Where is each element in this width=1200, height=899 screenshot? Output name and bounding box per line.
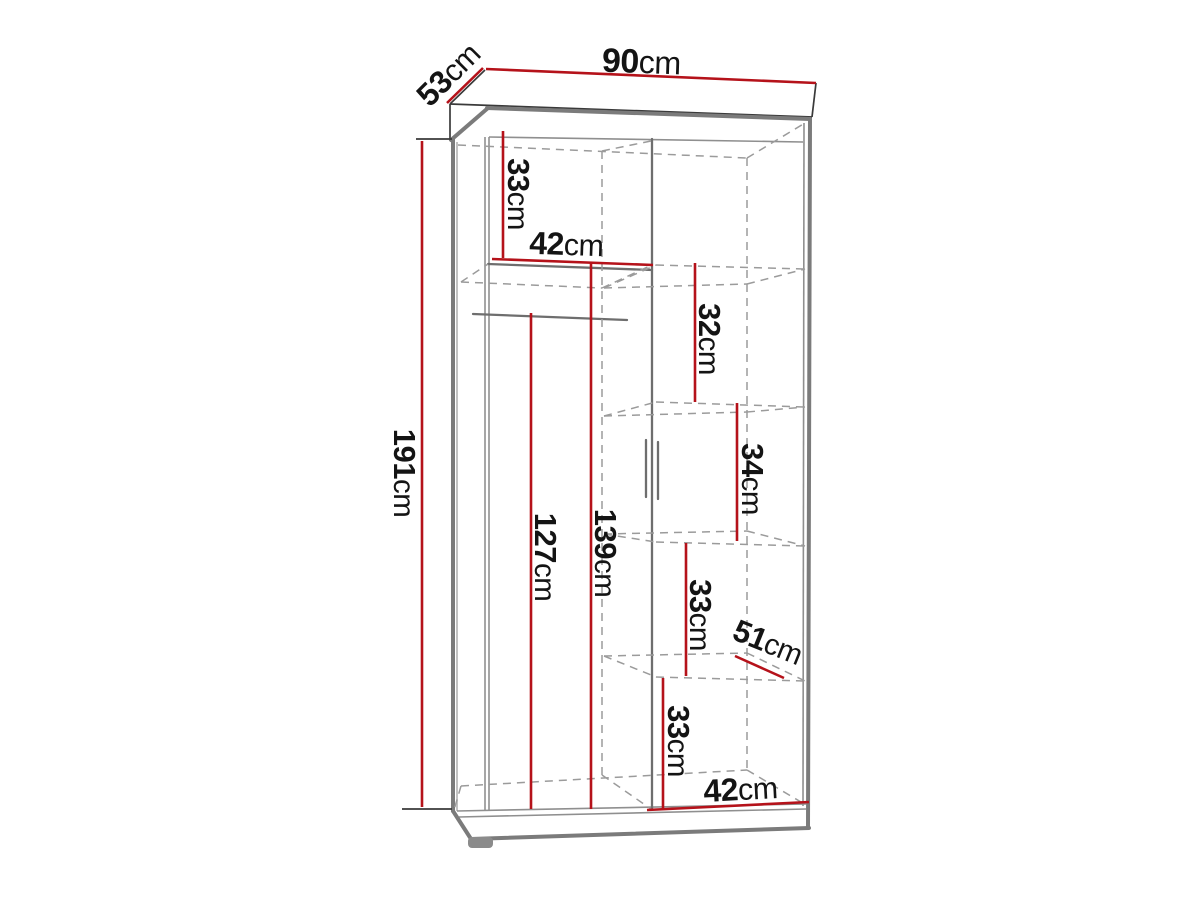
right-shelf3-back: [604, 531, 747, 534]
dimension-label: 34cm: [735, 443, 770, 515]
dimension-label: 32cm: [692, 303, 727, 375]
right-shelf2-right-diag: [747, 407, 805, 412]
right-shelf3-front: [656, 542, 805, 546]
interior-ceiling-edge: [489, 137, 803, 142]
right-shelf2-front: [656, 402, 805, 407]
plinth-bottom-edge: [471, 828, 809, 839]
dimension-label: 42cm: [529, 225, 604, 264]
dimension-label: 33cm: [683, 579, 718, 651]
dimension-height-191cm: 191cm: [387, 141, 422, 807]
right-shelf4-back: [604, 653, 747, 656]
hanging-rail: [473, 314, 627, 320]
right-shelf2-left-diag: [604, 402, 656, 416]
dimension-label: 42cm: [702, 769, 778, 809]
right-shelf1-back: [604, 284, 747, 288]
dimension-label: 139cm: [588, 509, 623, 597]
partition-bottom-diagonal: [602, 775, 651, 809]
right-shelf4-left-diag: [604, 656, 656, 677]
right-shelf1-front: [656, 265, 805, 269]
dimension-label: 33cm: [501, 158, 536, 230]
dimension-right-section4-33cm: 33cm: [661, 678, 696, 808]
dimension-label: 33cm: [661, 705, 696, 777]
dimension-shelf-width-42cm: 42cm: [492, 225, 653, 265]
plinth-left-diagonal: [453, 811, 471, 839]
right-shelf1-right-diag: [747, 269, 805, 284]
right-shelf3-right-diag: [747, 531, 805, 546]
dimension-label: 127cm: [528, 513, 563, 601]
dimension-right-section1-32cm: 32cm: [692, 263, 727, 402]
wardrobe-dimension-diagram: 90cm 53cm 191cm 33cm 42cm 127cm 139cm 3: [0, 0, 1200, 899]
dimension-right-section2-34cm: 34cm: [735, 403, 770, 541]
dimension-label: 191cm: [387, 429, 422, 517]
partition-top-diagonal: [602, 141, 651, 151]
carcass-right-edge: [808, 119, 810, 828]
dimension-right-section3-33cm: 33cm: [683, 543, 718, 676]
left-foot: [468, 837, 493, 848]
dimension-label: 51cm: [728, 613, 808, 672]
right-shelf2-back: [604, 412, 747, 416]
dimension-shelf-depth-51cm: 51cm: [728, 613, 808, 678]
dimension-left-section-139cm: 139cm: [588, 262, 623, 809]
left-shelf-back-edge: [461, 282, 602, 288]
dimension-rail-height-127cm: 127cm: [528, 313, 563, 809]
dimension-label: 90cm: [601, 42, 681, 83]
diagram-canvas: 90cm 53cm 191cm 33cm 42cm 127cm 139cm 3: [0, 0, 1200, 899]
carcass-top-left-diagonal: [451, 108, 488, 140]
carcass-right-inner-edge: [803, 123, 804, 806]
left-shelf-left-diagonal: [461, 264, 488, 282]
